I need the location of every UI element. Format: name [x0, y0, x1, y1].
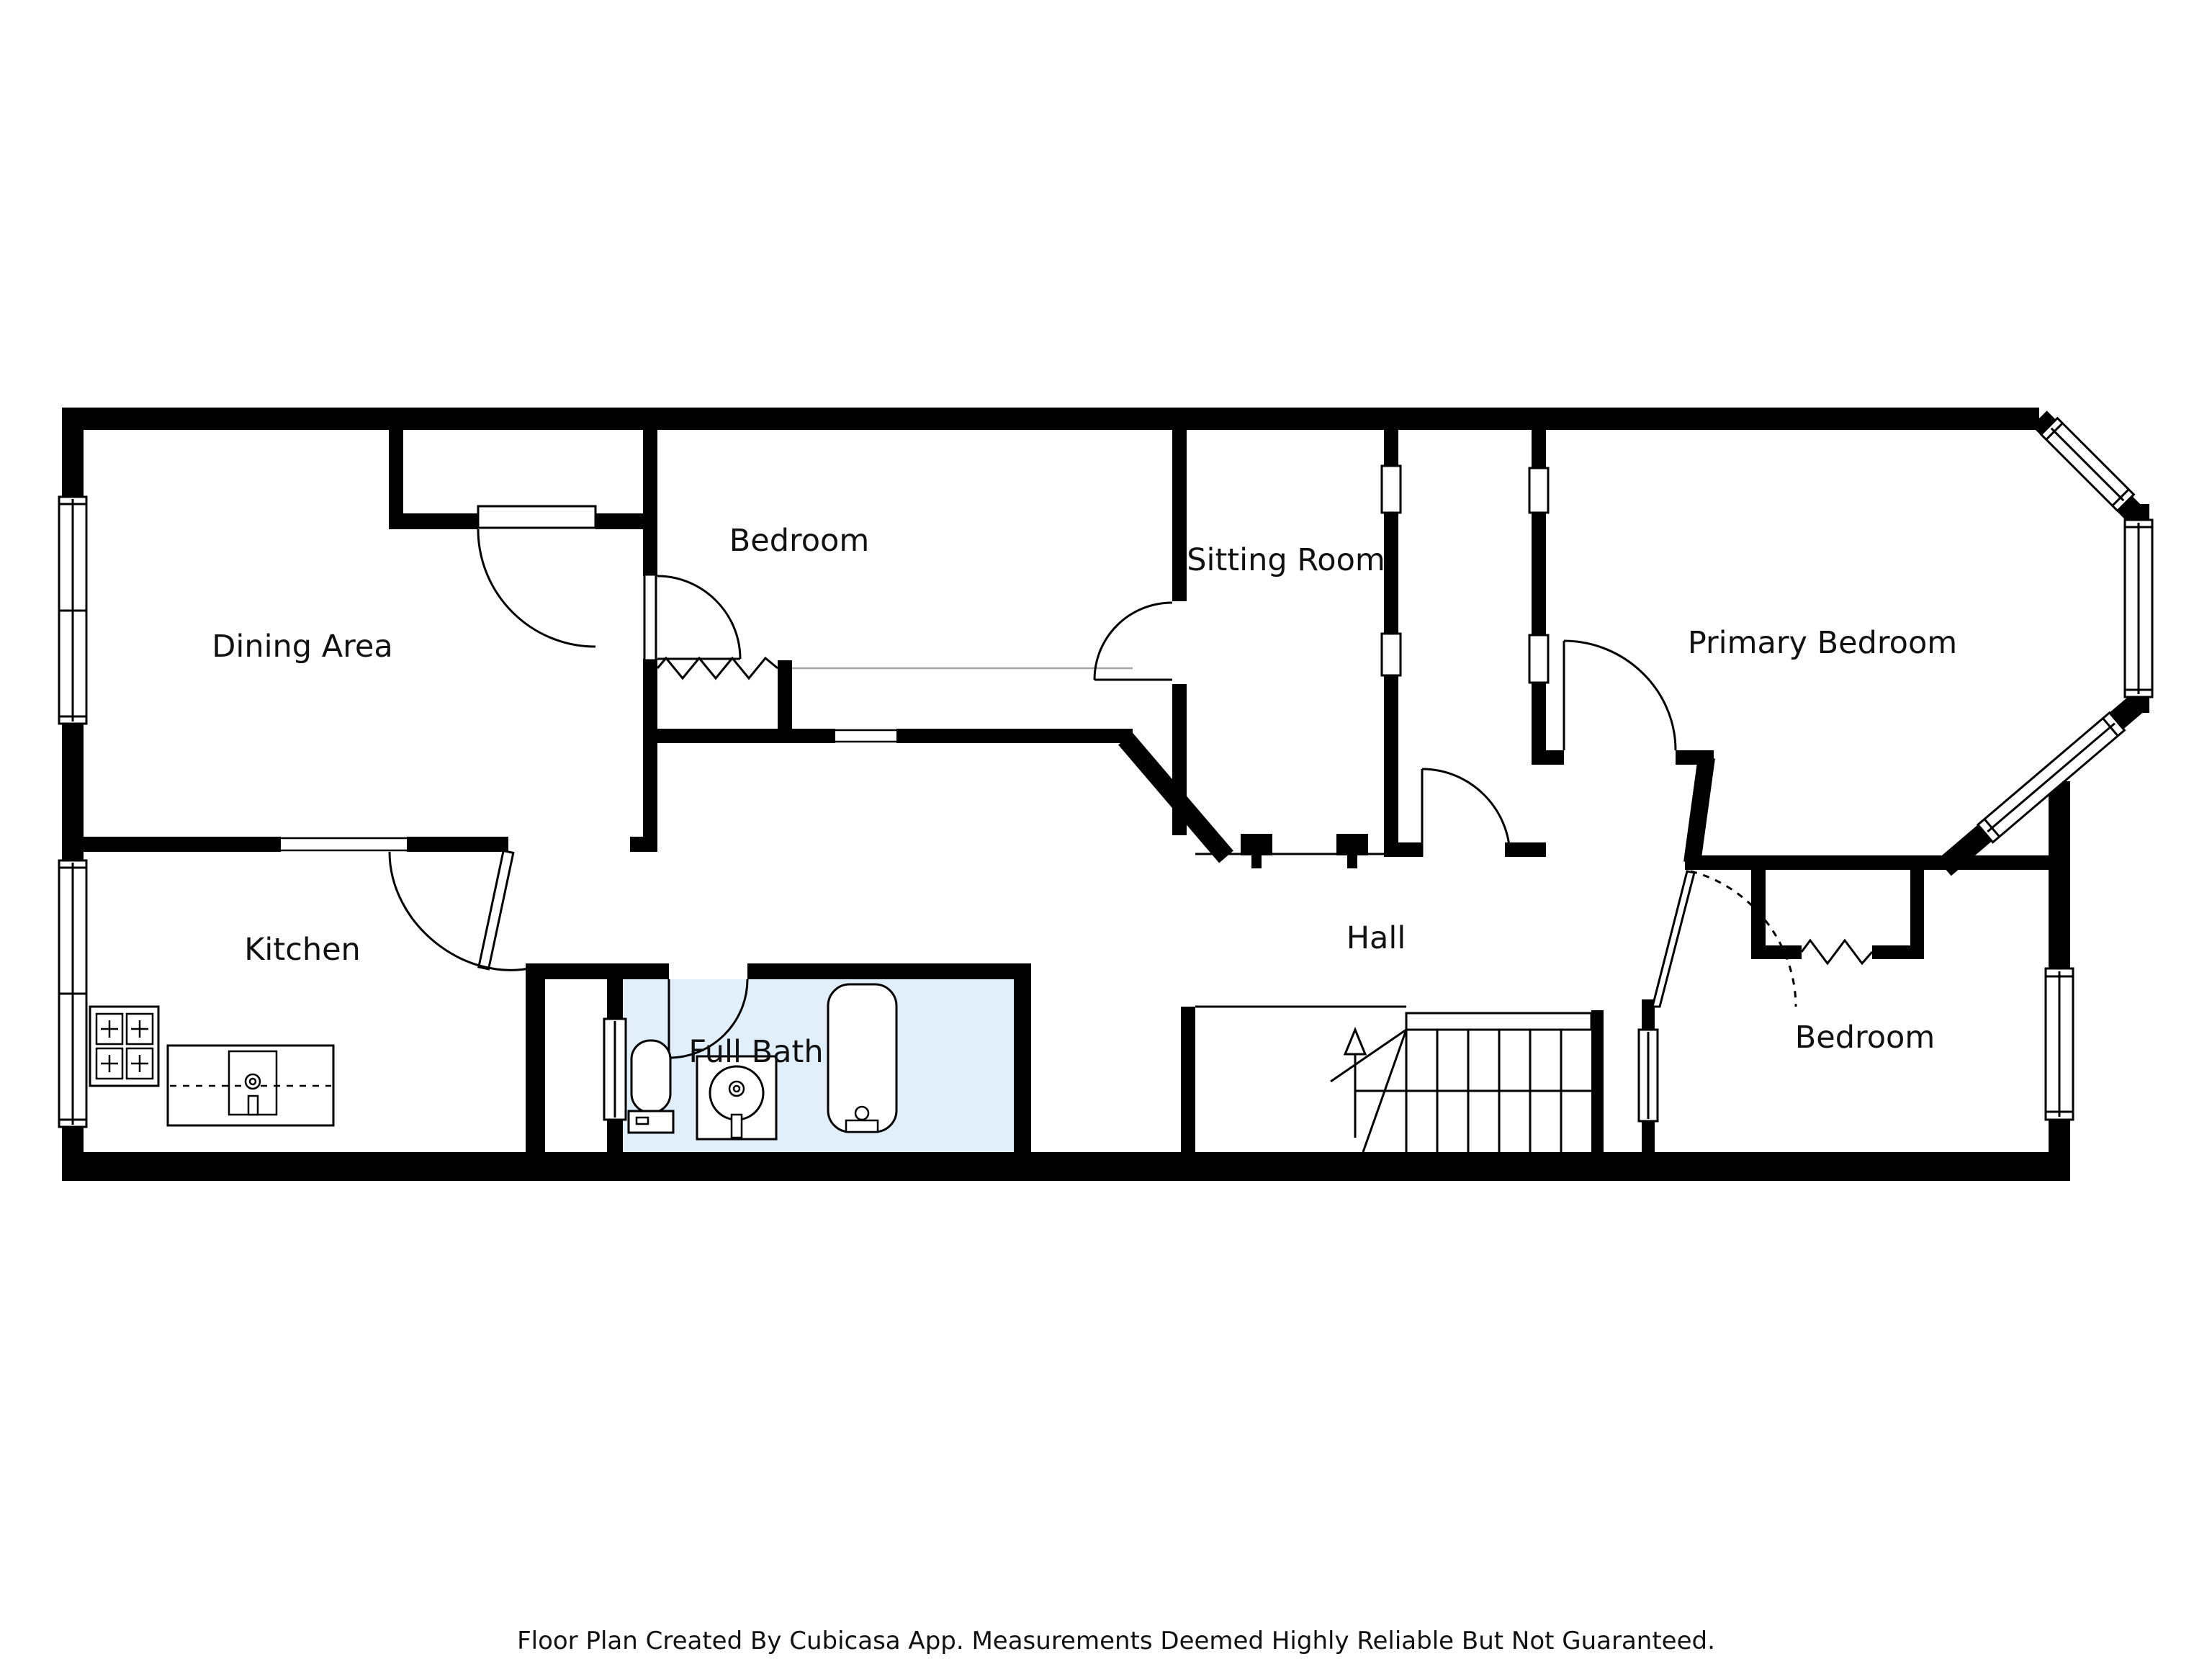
door-primary — [1564, 641, 1676, 750]
window-west-kitchen — [59, 860, 86, 1127]
floor-plan-canvas: Dining Area Bedroom Sitting Room Primary… — [0, 0, 2212, 1659]
footer-disclaimer: Floor Plan Created By Cubicasa App. Meas… — [517, 1627, 1715, 1655]
toilet-icon — [629, 1040, 673, 1133]
glass-panel-icon — [1529, 635, 1548, 683]
room-label-bedroom-mid: Bedroom — [729, 523, 870, 559]
room-label-dining: Dining Area — [212, 629, 392, 665]
stove-icon — [90, 1007, 158, 1086]
window-bedroom-right — [2046, 968, 2073, 1120]
room-label-bedroom-right: Bedroom — [1795, 1020, 1935, 1056]
door-bedroom-right — [1653, 871, 1796, 1007]
glass-panel-icon — [1382, 466, 1401, 513]
room-label-sitting: Sitting Room — [1187, 542, 1385, 578]
floor-plan-page: Dining Area Bedroom Sitting Room Primary… — [0, 0, 2212, 1659]
interior-walls — [84, 408, 2070, 1181]
door-hall-sitting — [1422, 769, 1510, 857]
exterior-walls — [62, 408, 2149, 1181]
closet-zigzag-icon — [1802, 940, 1872, 963]
pillar — [1336, 834, 1368, 868]
window-bay-east — [2125, 520, 2152, 697]
room-label-hall: Hall — [1346, 920, 1406, 956]
pillar — [1241, 834, 1272, 868]
glass-panel-icon — [1382, 634, 1401, 675]
stairs-up-icon — [1195, 1007, 1591, 1152]
window-bath-shaft — [604, 1019, 626, 1120]
window-west-dining — [59, 497, 86, 724]
door-dining-closet — [478, 506, 595, 647]
window-stair-bedroom — [1639, 1030, 1658, 1121]
room-label-bath: Full Bath — [688, 1034, 823, 1070]
bathtub-icon — [828, 984, 896, 1132]
window-bay-upper — [2041, 418, 2134, 511]
cased-openings — [281, 730, 896, 850]
kitchen-sink-icon — [168, 1046, 333, 1125]
room-label-kitchen: Kitchen — [244, 932, 361, 968]
door-bedroom-mid — [644, 575, 740, 660]
door-kitchen — [390, 851, 533, 971]
closet-zigzag-icon — [657, 658, 778, 678]
glass-panel-icon — [1529, 468, 1548, 513]
room-label-primary: Primary Bedroom — [1688, 625, 1957, 661]
closet-fronts — [657, 658, 1872, 963]
